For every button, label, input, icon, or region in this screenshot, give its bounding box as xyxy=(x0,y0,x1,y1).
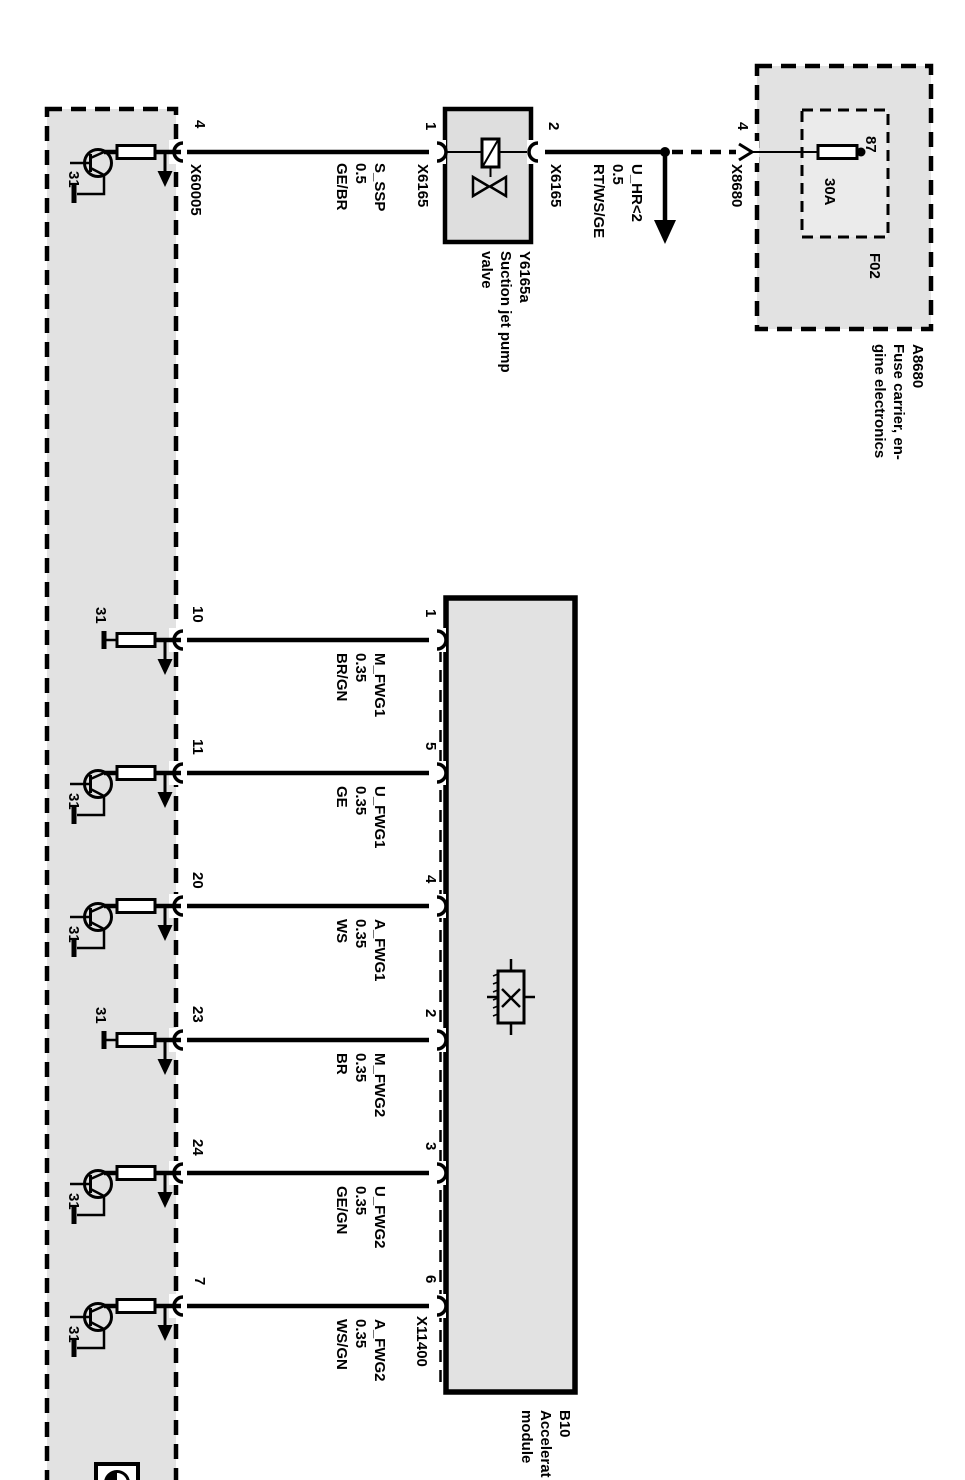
pin-number: 23 xyxy=(188,1006,207,1023)
wire-signal: A_FWG1 xyxy=(370,919,389,982)
wire-signal: S_SSP xyxy=(370,163,389,211)
component-name-line2: valve xyxy=(477,251,496,373)
wire-color: BR xyxy=(332,1053,351,1117)
wire-gauge: 0.35 xyxy=(351,1186,370,1249)
fuse-id-f02: F02 xyxy=(865,253,884,279)
component-name-line2: gine electronics xyxy=(870,344,889,460)
fuse-terminal-87: 87 xyxy=(861,136,880,153)
wire-color: RT/WS/GE xyxy=(589,164,608,238)
component-id: Y6165a xyxy=(515,251,534,373)
wire-signal: A_FWG2 xyxy=(370,1319,389,1382)
wire-gauge: 0.5 xyxy=(608,164,627,238)
wire-color: GE/GN xyxy=(332,1186,351,1249)
wire-signal: M_FWG1 xyxy=(370,653,389,717)
fuse-carrier-label: A8680 Fuse carrier, en- gine electronics xyxy=(870,344,927,460)
ground-terminal-label: 31 xyxy=(64,171,83,188)
valve-component-label: Y6165a Suction jet pump valve xyxy=(477,251,534,373)
pin-number: 6 xyxy=(421,1275,440,1283)
connector-label-x8680: X8680 xyxy=(727,164,746,207)
wire-color: BR/GN xyxy=(332,653,351,717)
pin-number: 5 xyxy=(421,742,440,750)
wire-label-u-hr: U_HR<2 0.5 RT/WS/GE xyxy=(589,164,646,238)
wire-label: M_FWG2 0.35 BR xyxy=(332,1053,389,1117)
component-id: B10 xyxy=(555,1410,574,1478)
wire-label: A_FWG1 0.35 WS xyxy=(332,919,389,982)
wire-color: WS xyxy=(332,919,351,982)
connector-label-x11400: X11400 xyxy=(412,1316,431,1367)
pin-number: 2 xyxy=(421,1009,440,1017)
pin-number: 11 xyxy=(188,739,207,755)
pin-number: 1 xyxy=(421,609,440,617)
wire-color: WS/GN xyxy=(332,1319,351,1382)
ground-terminal-label: 31 xyxy=(91,607,110,624)
wire-gauge: 0.35 xyxy=(351,1319,370,1382)
component-name-line1: Fuse carrier, en- xyxy=(889,344,908,460)
connector-label-x6165-right: X6165 xyxy=(546,164,565,207)
wire-gauge: 0.35 xyxy=(351,786,370,849)
wire-label-s-ssp: S_SSP 0.5 GE/BR xyxy=(332,163,389,211)
pin-number-left-4: 4 xyxy=(190,120,209,128)
wire-signal: U_FWG2 xyxy=(370,1186,389,1249)
module-logo-icon xyxy=(96,1464,138,1480)
pin-number-valve-1: 1 xyxy=(421,122,440,130)
pin-number: 3 xyxy=(421,1142,440,1150)
pin-number: 4 xyxy=(421,875,440,883)
continuation-arrow xyxy=(654,220,676,244)
pin-number: 10 xyxy=(188,606,207,623)
ground-terminal-label: 31 xyxy=(64,1193,83,1210)
accelerator-module-label: B10 Accelerat module xyxy=(517,1410,574,1478)
wire-signal: M_FWG2 xyxy=(370,1053,389,1117)
ground-terminal-label: 31 xyxy=(64,1326,83,1343)
pin-number-valve-2: 2 xyxy=(544,122,563,130)
pin-number-fusebox-4: 4 xyxy=(733,122,752,130)
pin-number: 20 xyxy=(188,872,207,889)
component-name-line1: Suction jet pump xyxy=(496,251,515,373)
pin-number: 24 xyxy=(188,1139,207,1156)
ground-terminal-label: 31 xyxy=(91,1007,110,1024)
wire-color: GE/BR xyxy=(332,163,351,211)
wire-label: U_FWG1 0.35 GE xyxy=(332,786,389,849)
wire-signal: U_HR<2 xyxy=(627,164,646,238)
fuse-f02-box xyxy=(802,110,888,237)
wire-gauge: 0.35 xyxy=(351,919,370,982)
wiring-diagram-page: 4 X60005 S_SSP 0.5 GE/BR 1 X6165 Y6165a … xyxy=(0,0,965,1480)
wire-gauge: 0.5 xyxy=(351,163,370,211)
wire-label: M_FWG1 0.35 BR/GN xyxy=(332,653,389,717)
wire-label: A_FWG2 0.35 WS/GN xyxy=(332,1319,389,1382)
component-id: A8680 xyxy=(908,344,927,460)
component-name-line1: Accelerat xyxy=(536,1410,555,1478)
diagram-linework xyxy=(0,0,965,1480)
valve-pin1-connector xyxy=(429,140,446,164)
wire-gauge: 0.35 xyxy=(351,653,370,717)
ground-terminal-label: 31 xyxy=(64,926,83,943)
connector-label-x6165-left: X6165 xyxy=(413,164,432,207)
accelerator-module-box xyxy=(446,598,575,1392)
connector-label-x60005: X60005 xyxy=(186,164,205,216)
component-name-line2: module xyxy=(517,1410,536,1478)
wire-color: GE xyxy=(332,786,351,849)
wire-gauge: 0.35 xyxy=(351,1053,370,1117)
suction-jet-pump-valve-box xyxy=(445,109,531,242)
wire-label: U_FWG2 0.35 GE/GN xyxy=(332,1186,389,1249)
pin-number: 7 xyxy=(190,1277,209,1285)
fuse-element xyxy=(818,146,857,159)
fuse-rating-30a: 30A xyxy=(820,178,839,206)
ground-terminal-label: 31 xyxy=(64,793,83,810)
wire-signal: U_FWG1 xyxy=(370,786,389,849)
